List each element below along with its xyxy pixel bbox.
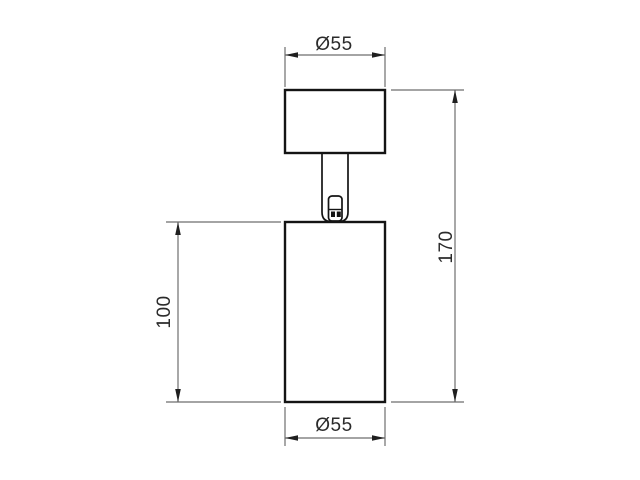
joint-knob-outline: [329, 196, 343, 221]
body-outline: [285, 222, 385, 402]
arrowhead-down-icon: [452, 389, 458, 402]
body-height-dimension: 100: [154, 222, 281, 402]
bottom-diameter-dimension: Ø55: [285, 407, 385, 446]
body-height-label: 100: [154, 295, 175, 328]
overall-height-label: 170: [436, 230, 457, 263]
swivel-joint: [329, 196, 343, 221]
arrowhead-up-icon: [452, 90, 458, 103]
arrowhead-down-icon: [175, 389, 181, 402]
arrowhead-right-icon: [372, 435, 385, 441]
top-diameter-dimension: Ø55: [285, 34, 385, 87]
spotlight-dimension-drawing: Ø55 Ø55 100 170: [0, 0, 640, 480]
overall-height-dimension: 170: [391, 90, 464, 402]
technical-drawing-canvas: Ø55 Ø55 100 170: [0, 0, 640, 480]
joint-screw-mark-left: [331, 212, 335, 218]
fixture-outline: [285, 90, 385, 402]
arrowhead-left-icon: [285, 435, 298, 441]
bottom-diameter-label: Ø55: [315, 415, 352, 436]
arrowhead-left-icon: [285, 52, 298, 58]
top-diameter-label: Ø55: [315, 34, 352, 55]
joint-screw-mark-right: [337, 212, 341, 218]
arrowhead-up-icon: [175, 222, 181, 235]
canopy-outline: [285, 90, 385, 153]
arrowhead-right-icon: [372, 52, 385, 58]
